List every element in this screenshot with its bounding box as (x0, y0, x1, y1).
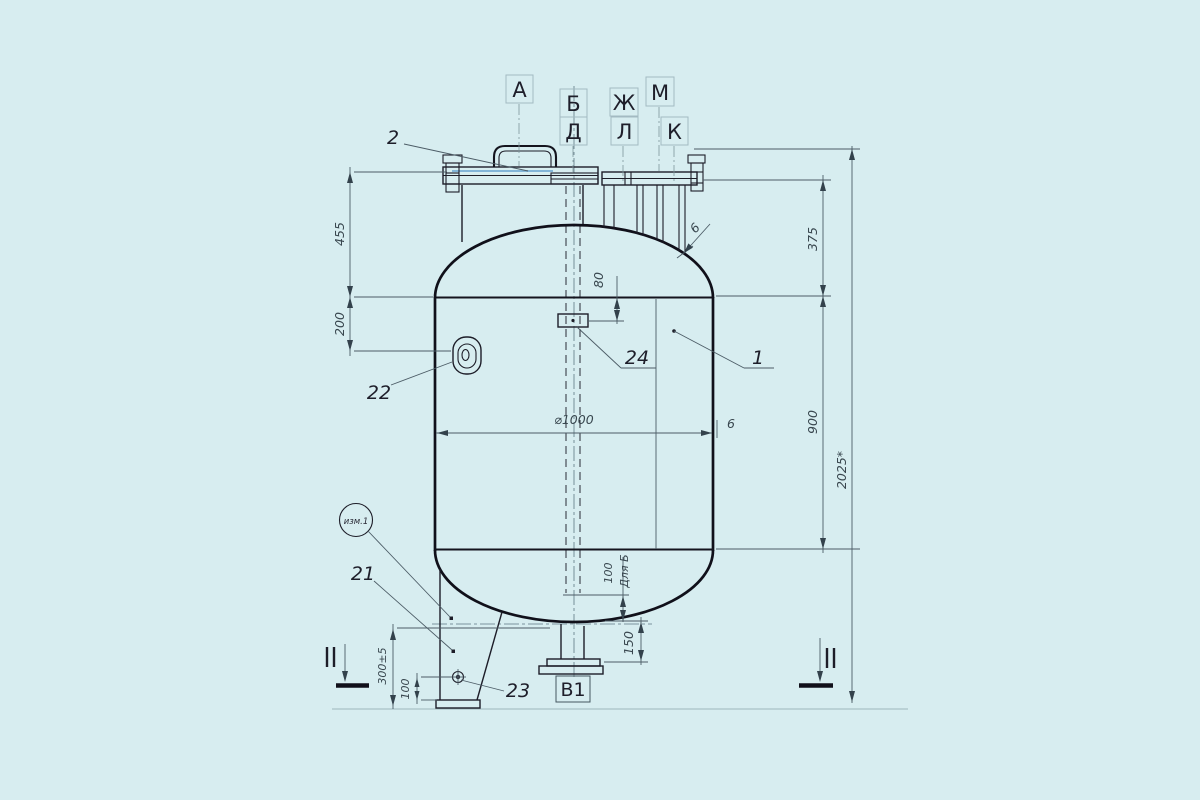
label-nozzle-a: А (512, 78, 527, 102)
drawing-canvas: А Б Д Ж Л М К В1 (0, 0, 1200, 800)
section-mark-left (327, 644, 369, 686)
dim-diameter: ⌀1000 (554, 412, 593, 427)
label-nozzle-k: К (667, 120, 682, 144)
dimension-diameter: ⌀1000 6 (436, 412, 735, 438)
bottom-nozzle: В1 (539, 624, 603, 702)
dimension-pipe-clearance: 100 Для Б (563, 554, 631, 622)
support-leg (436, 569, 502, 708)
dim-900: 900 (805, 410, 820, 434)
leg-hole (450, 669, 466, 685)
section-mark-right (799, 638, 834, 686)
dim-455: 455 (332, 222, 347, 246)
dim-100-pipe: 100 (602, 563, 615, 584)
label-nozzle-v1: В1 (560, 679, 585, 701)
dim-wall-thickness: 6 (727, 416, 735, 431)
label-nozzle-zh: Ж (613, 91, 636, 115)
label-nozzle-l: Л (617, 120, 633, 144)
nameplate (558, 314, 588, 327)
dim-2025: 2025* (834, 451, 849, 489)
revision-label: изм.1 (344, 517, 369, 527)
lifting-lug (453, 337, 481, 374)
nozzle-necks (604, 185, 685, 254)
label-nozzle-d: Д (565, 120, 581, 144)
vessel-drawing: А Б Д Ж Л М К В1 (0, 0, 1200, 800)
internal-dip-pipe (566, 186, 580, 593)
dim-150: 150 (621, 631, 636, 655)
foot-plate (436, 700, 480, 708)
centerlines (432, 86, 652, 678)
revision-balloon: изм.1 (340, 504, 451, 618)
dim-head-thickness: 6 (687, 220, 703, 236)
callout-1: 1 (752, 347, 764, 369)
label-nozzle-m: М (651, 81, 669, 105)
lifting-handle (494, 146, 556, 167)
callout-22: 22 (367, 382, 391, 404)
callout-21: 21 (351, 563, 375, 585)
callout-23: 23 (506, 680, 530, 702)
dim-300: 300±5 (376, 647, 389, 684)
dim-100-pipe-note: Для Б (618, 554, 631, 588)
dim-80: 80 (591, 272, 606, 288)
cover-bolt-left (443, 155, 462, 192)
dimension-right: 375 900 2025* (694, 146, 860, 703)
dimension-left: 455 200 (332, 167, 451, 356)
dim-375: 375 (805, 227, 820, 251)
dim-100-hole: 100 (399, 679, 412, 700)
label-nozzle-b: Б (566, 92, 580, 116)
callout-24: 24 (625, 347, 649, 369)
callout-2: 2 (387, 127, 399, 149)
dim-200: 200 (332, 312, 347, 336)
